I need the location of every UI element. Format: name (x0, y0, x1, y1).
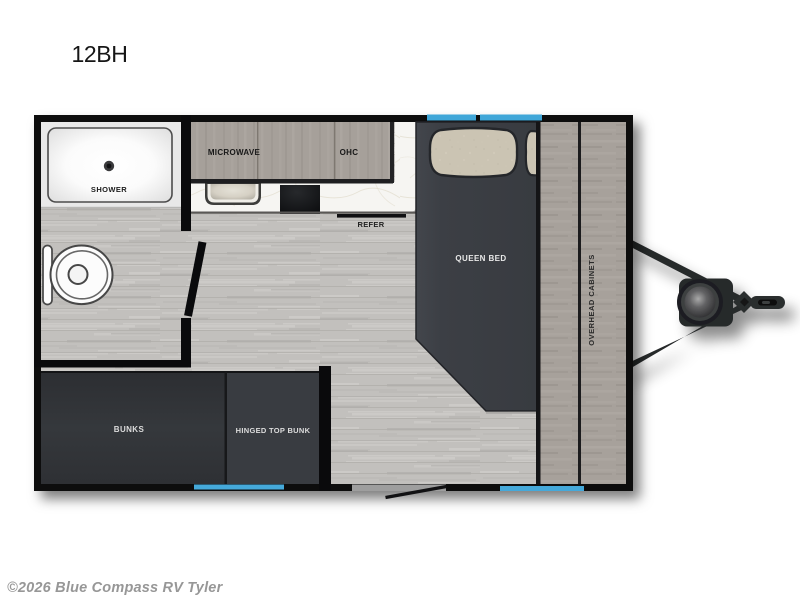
svg-text:©2026 Blue Compass RV Tyler: ©2026 Blue Compass RV Tyler (7, 580, 224, 596)
svg-text:HINGED TOP BUNK: HINGED TOP BUNK (236, 426, 311, 435)
svg-text:REFER: REFER (358, 220, 385, 229)
svg-text:SHOWER: SHOWER (91, 185, 127, 194)
svg-text:OHC: OHC (340, 148, 359, 157)
svg-text:BUNKS: BUNKS (114, 425, 145, 434)
svg-text:MICROWAVE: MICROWAVE (208, 148, 261, 157)
svg-text:QUEEN BED: QUEEN BED (455, 254, 506, 263)
svg-text:12BH: 12BH (72, 41, 128, 67)
svg-text:OVERHEAD CABINETS: OVERHEAD CABINETS (587, 254, 596, 345)
